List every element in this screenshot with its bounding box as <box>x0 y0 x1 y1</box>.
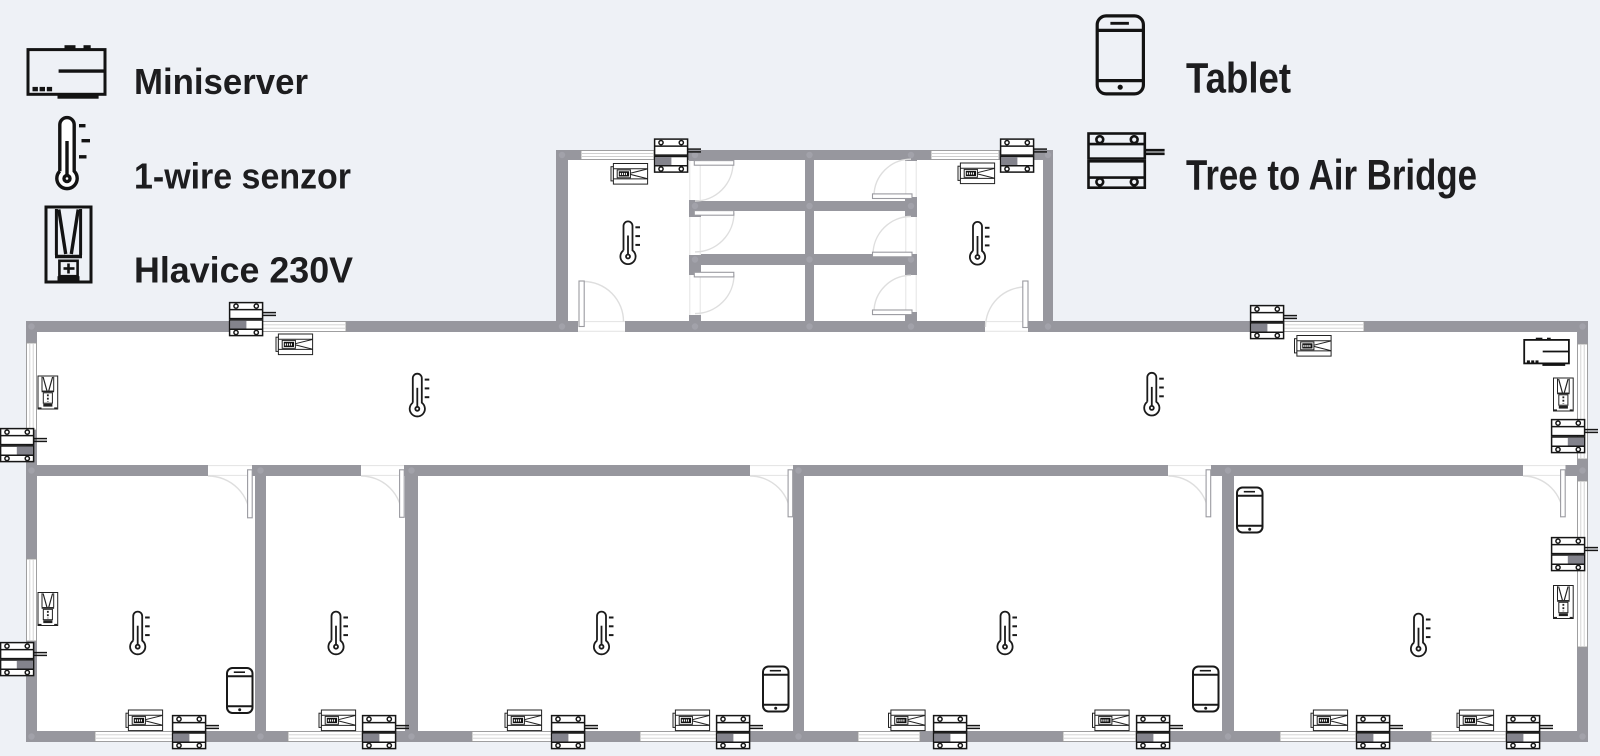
svg-text:Hlavice 230V: Hlavice 230V <box>134 250 353 291</box>
svg-text:Miniserver: Miniserver <box>134 61 308 102</box>
svg-text:1-wire senzor: 1-wire senzor <box>134 156 351 197</box>
svg-text:Tablet: Tablet <box>1186 55 1291 103</box>
svg-text:Tree to Air Bridge: Tree to Air Bridge <box>1186 152 1477 200</box>
